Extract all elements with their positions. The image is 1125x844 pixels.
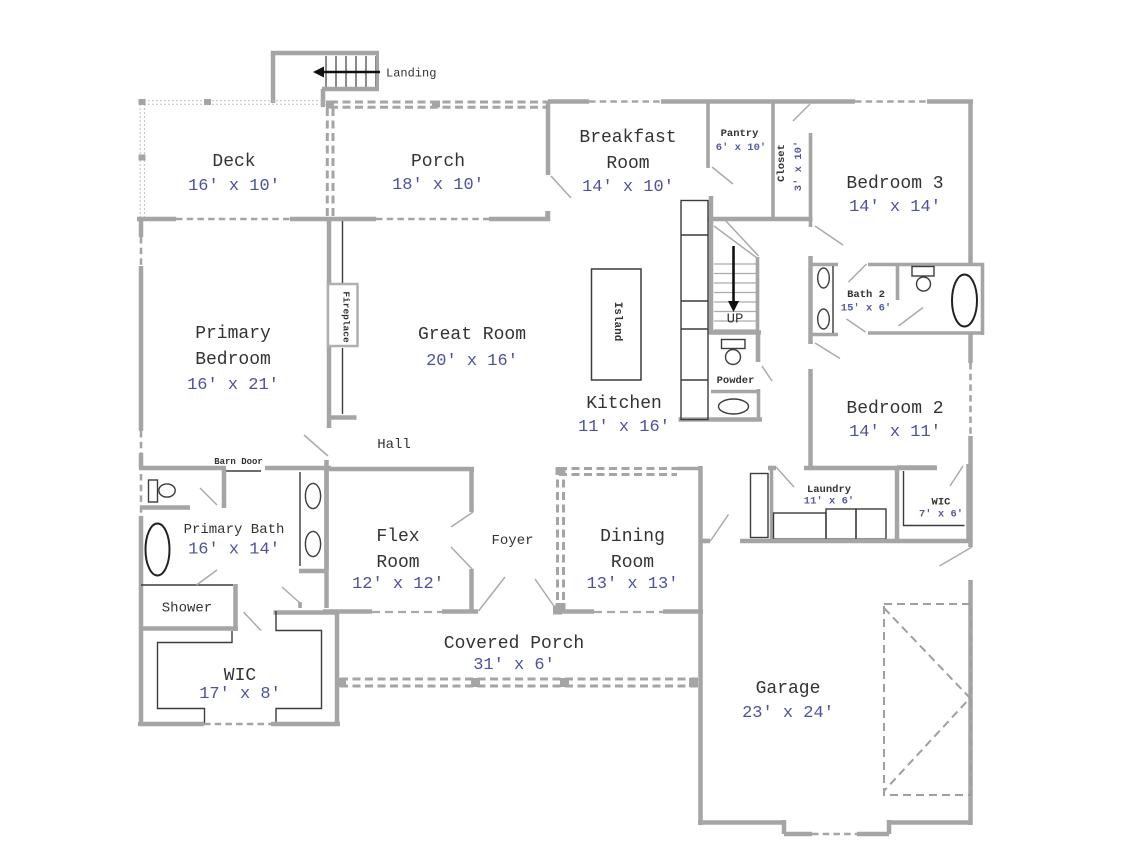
svg-text:Room: Room xyxy=(611,553,654,573)
svg-text:Breakfast: Breakfast xyxy=(579,128,676,148)
svg-text:18' x 10': 18' x 10' xyxy=(392,176,484,195)
svg-text:Dining: Dining xyxy=(600,527,665,547)
svg-text:14' x 11': 14' x 11' xyxy=(849,423,941,442)
svg-text:Bedroom 2: Bedroom 2 xyxy=(846,399,943,419)
svg-text:Porch: Porch xyxy=(411,152,465,172)
svg-text:Covered Porch: Covered Porch xyxy=(444,634,584,654)
svg-text:16' x 21': 16' x 21' xyxy=(187,376,279,395)
svg-text:3' x 10': 3' x 10' xyxy=(793,141,805,191)
svg-text:16' x 10': 16' x 10' xyxy=(188,177,280,196)
svg-text:Primary Bath: Primary Bath xyxy=(184,522,285,538)
svg-text:14' x 14': 14' x 14' xyxy=(849,198,941,217)
svg-text:Pantry: Pantry xyxy=(721,128,760,140)
svg-text:Primary: Primary xyxy=(195,324,271,344)
svg-text:20' x 16': 20' x 16' xyxy=(426,352,518,371)
svg-text:17' x 8': 17' x 8' xyxy=(199,685,281,704)
svg-text:Garage: Garage xyxy=(756,679,821,699)
svg-text:UP: UP xyxy=(727,312,744,328)
svg-text:13' x 13': 13' x 13' xyxy=(587,575,679,594)
svg-text:Powder: Powder xyxy=(717,375,755,387)
svg-text:Shower: Shower xyxy=(162,601,212,617)
svg-text:11' x 16': 11' x 16' xyxy=(578,418,670,437)
svg-text:WIC: WIC xyxy=(224,666,257,686)
svg-text:Barn Door: Barn Door xyxy=(214,457,263,467)
svg-text:Landing: Landing xyxy=(386,67,436,81)
svg-text:16' x 14': 16' x 14' xyxy=(188,541,280,560)
svg-text:15' x 6': 15' x 6' xyxy=(841,303,891,315)
svg-text:Closet: Closet xyxy=(776,144,788,182)
svg-text:Bath 2: Bath 2 xyxy=(847,289,885,301)
svg-text:23' x 24': 23' x 24' xyxy=(742,704,834,723)
svg-text:Room: Room xyxy=(376,553,419,573)
svg-text:Great Room: Great Room xyxy=(418,325,526,345)
svg-text:Laundry: Laundry xyxy=(807,484,852,496)
svg-text:Foyer: Foyer xyxy=(491,533,533,549)
svg-text:Island: Island xyxy=(611,302,623,342)
svg-text:14' x 10': 14' x 10' xyxy=(582,178,674,197)
svg-text:Bedroom 3: Bedroom 3 xyxy=(846,174,943,194)
svg-text:WIC: WIC xyxy=(932,497,952,509)
svg-text:Deck: Deck xyxy=(212,152,255,172)
svg-text:7' x 6': 7' x 6' xyxy=(919,509,963,521)
svg-text:Hall: Hall xyxy=(377,437,411,453)
svg-text:11' x 6': 11' x 6' xyxy=(804,496,854,508)
svg-text:Fireplace: Fireplace xyxy=(341,291,352,343)
svg-text:31' x 6': 31' x 6' xyxy=(473,656,555,675)
svg-text:Bedroom: Bedroom xyxy=(195,350,271,370)
svg-text:Kitchen: Kitchen xyxy=(586,394,662,414)
svg-text:6' x 10': 6' x 10' xyxy=(716,142,766,154)
svg-text:12' x 12': 12' x 12' xyxy=(352,575,444,594)
svg-text:Room: Room xyxy=(606,154,649,174)
svg-text:Flex: Flex xyxy=(376,527,419,547)
